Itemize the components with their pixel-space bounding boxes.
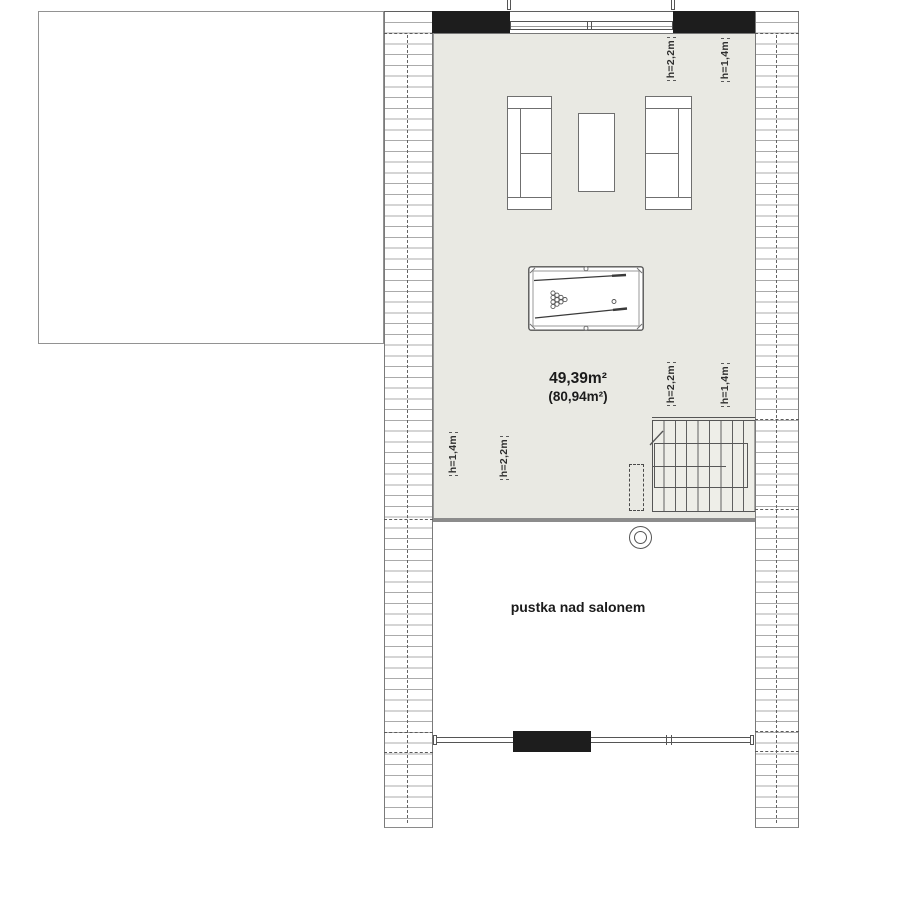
height-label: h=1,4m bbox=[718, 363, 732, 407]
floor-edge bbox=[433, 518, 755, 522]
middle-pocket bbox=[584, 326, 588, 330]
window-end-cap bbox=[671, 0, 675, 10]
window bbox=[510, 21, 673, 30]
billiard-table bbox=[528, 266, 644, 331]
coffee-table bbox=[578, 113, 615, 192]
height-label: h=2,2m bbox=[497, 436, 511, 480]
void-label: pustka nad salonem bbox=[497, 599, 659, 615]
window-end-cap bbox=[507, 0, 511, 10]
dashed-wall-line bbox=[384, 33, 433, 34]
dashed-wall-line bbox=[755, 731, 799, 732]
area-primary: 49,39m² bbox=[500, 369, 656, 388]
height-label: h=2,2m bbox=[664, 362, 678, 406]
sofa-armrest bbox=[646, 197, 691, 198]
column bbox=[629, 526, 652, 549]
height-label-text: h=1,4m bbox=[719, 41, 731, 79]
height-label: h=2,2m bbox=[664, 37, 678, 81]
sofa-left bbox=[507, 96, 552, 210]
dashed-wall-line bbox=[384, 519, 433, 520]
railing-end-cap bbox=[750, 735, 754, 745]
sofa-right bbox=[645, 96, 692, 210]
wall-segment-left bbox=[432, 11, 510, 33]
height-label-text: h=1,4m bbox=[719, 366, 731, 404]
dashed-wall-line bbox=[755, 419, 799, 420]
height-label-text: h=2,2m bbox=[498, 439, 510, 477]
stairs-flight-divider bbox=[652, 466, 726, 467]
dashed-wall-line bbox=[384, 752, 433, 753]
stairs-direction-arrow bbox=[648, 429, 666, 447]
dashed-wall-line bbox=[755, 509, 799, 510]
roof-ridge-dashed-line bbox=[776, 35, 777, 823]
height-label: h=1,4m bbox=[446, 432, 460, 476]
adjacent-roof-outline bbox=[38, 11, 384, 344]
height-label-text: h=2,2m bbox=[665, 40, 677, 78]
height-label: h=1,4m bbox=[718, 38, 732, 82]
sofa-cushion-divider bbox=[646, 153, 679, 154]
roof-ridge-dashed-line bbox=[407, 35, 408, 823]
room-area-label: 49,39m² (80,94m²) bbox=[500, 369, 656, 406]
dashed-wall-line bbox=[755, 33, 799, 34]
area-secondary: (80,94m²) bbox=[500, 388, 656, 406]
dashed-duct-outline bbox=[629, 464, 644, 511]
height-label-text: h=2,2m bbox=[665, 365, 677, 403]
cue-stick-butt bbox=[612, 275, 626, 276]
height-label-text: h=1,4m bbox=[447, 435, 459, 473]
railing-end-cap bbox=[433, 735, 437, 745]
sofa-armrest bbox=[646, 108, 691, 109]
window-mullion bbox=[587, 21, 592, 30]
railing-joint bbox=[666, 735, 672, 745]
dashed-wall-line bbox=[755, 751, 799, 752]
floor-plan: 49,39m² (80,94m²) pustka nad salonem h=2… bbox=[0, 0, 922, 900]
cue-ball bbox=[612, 300, 616, 304]
wall-segment-right bbox=[673, 11, 755, 33]
column-core bbox=[634, 531, 647, 544]
void-railing bbox=[437, 737, 750, 743]
chimney-wall-block bbox=[513, 731, 591, 752]
sofa-cushion-divider bbox=[520, 153, 551, 154]
sofa-armrest bbox=[508, 197, 551, 198]
middle-pocket bbox=[584, 267, 588, 271]
roof-slope-hatch-left bbox=[384, 11, 433, 828]
sofa-armrest bbox=[508, 108, 551, 109]
dashed-wall-line bbox=[384, 732, 433, 733]
cue-stick-butt bbox=[613, 309, 627, 310]
